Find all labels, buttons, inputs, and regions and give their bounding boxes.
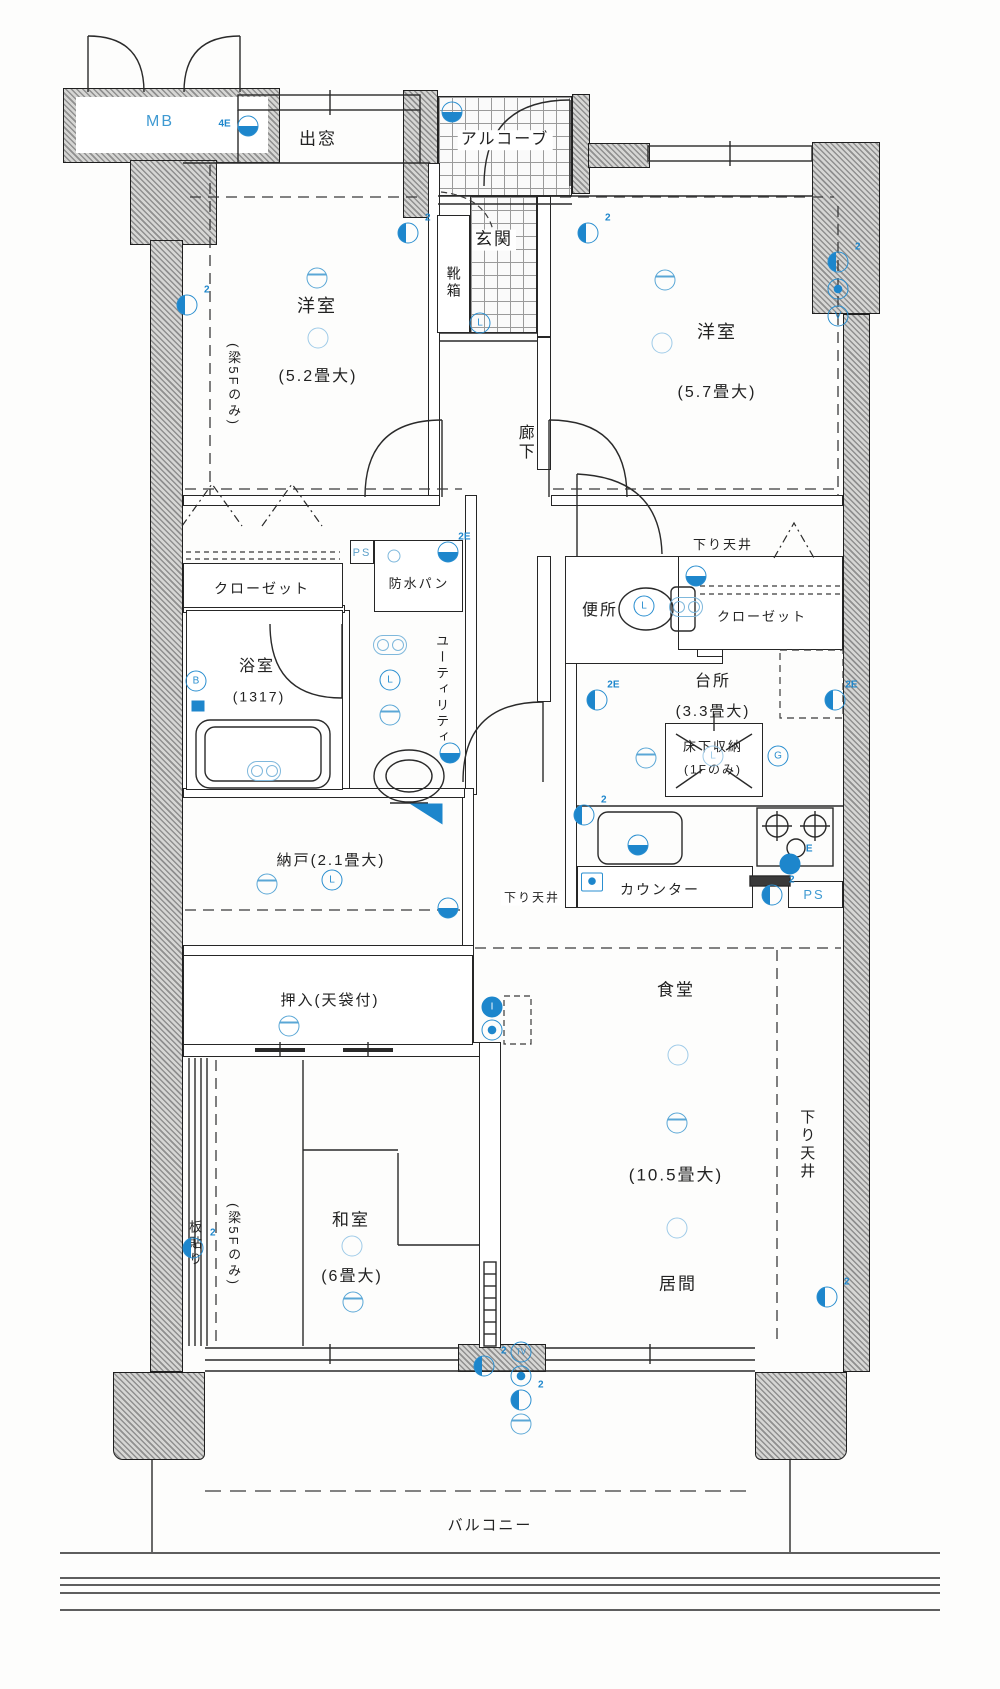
tv-jack-icon: V [828, 306, 849, 327]
light-switch-icon: L [380, 670, 401, 691]
toilet-faucet-icon [669, 597, 703, 617]
label-corridor: 廊下 [515, 424, 533, 462]
outlet-icon [438, 898, 459, 919]
label-closet-right: クローゼット [717, 610, 807, 624]
lamp-icon [342, 1236, 363, 1257]
symbol-tag: 2 [501, 1347, 507, 1357]
washer-faucet-icon: 2E [438, 542, 459, 563]
label-lowered-ceiling-3: 下り天井 [798, 1109, 815, 1181]
symbol-tag: 2E [845, 681, 857, 691]
light-switch-icon: L [703, 746, 724, 767]
gas-outlet-icon: G [768, 746, 789, 767]
label-balcony: バルコニー [448, 1518, 533, 1535]
outlet-icon: 2 [183, 1238, 204, 1259]
label-alcove: アルコーブ [458, 130, 553, 150]
floor-plan: MB出窓アルコーブ玄関靴箱洋室(5.2畳大)(梁5Fのみ)廊下洋室(5.7畳大)… [0, 0, 1000, 1689]
label-western-room-1: 洋室 [297, 297, 337, 317]
outlet-icon: 2E [825, 690, 846, 711]
lamp-icon [668, 1045, 689, 1066]
label-utility: ユーティリティ [434, 634, 448, 746]
ceiling-light-icon [667, 1113, 688, 1134]
label-kitchen: 台所 [695, 673, 731, 691]
symbol-tag: 2 [538, 1381, 544, 1391]
label-mb: MB [146, 113, 174, 131]
ceiling-light-icon [511, 1414, 532, 1435]
symbol-tag: 2 [789, 876, 795, 886]
label-lowered-ceiling-2: 下り天井 [501, 890, 563, 905]
symbol-tag: 2 [855, 243, 861, 253]
fridge-corner-icon [410, 804, 443, 825]
symbol-tag: 2 [844, 1278, 850, 1288]
ceiling-light-icon [257, 874, 278, 895]
outlet-icon: 2 [578, 223, 599, 244]
counter-box-icon [581, 873, 603, 892]
gas-stove-icon: E [780, 854, 801, 875]
lamp-icon [667, 1218, 688, 1239]
bath-unit-icon: B [186, 671, 207, 692]
label-bay-window: 出窓 [299, 131, 337, 150]
label-ld-size: (10.5畳大) [629, 1167, 723, 1186]
label-closet-left: クローゼット [214, 581, 310, 596]
symbol-tag: 2 [210, 1229, 216, 1239]
outlet-icon: 2 [574, 805, 595, 826]
label-waterproof-pan: 防水パン [386, 576, 453, 592]
label-bathroom-size: (1317) [233, 689, 285, 704]
ceiling-light-icon [307, 268, 328, 289]
mb-light-icon: 4E [238, 116, 259, 137]
light-switch-icon: L [634, 596, 655, 617]
alcove-light-icon [442, 102, 463, 123]
symbol-tag: 2 [605, 214, 611, 224]
outlet-icon: 2 [828, 252, 849, 273]
ceiling-light-icon [380, 705, 401, 726]
symbol-tag: 2 [601, 796, 607, 806]
outlet-icon: 2 [511, 1390, 532, 1411]
symbol-tag: 4E [219, 120, 231, 130]
drain-icon [388, 550, 401, 563]
label-toilet: 便所 [582, 602, 618, 620]
label-counter: カウンター [620, 882, 700, 897]
ceiling-light-icon [343, 1292, 364, 1313]
aircon-jack-icon [482, 1020, 503, 1041]
symbol-tag: 2 [425, 214, 431, 224]
light-switch-icon: L [470, 313, 491, 334]
bath-faucet-icon [247, 761, 281, 781]
sink-faucet-icon [628, 835, 649, 856]
phone-jack-icon [828, 279, 849, 300]
ceiling-light-icon [655, 270, 676, 291]
outlet-icon: 2 [762, 885, 783, 906]
label-storeroom: 納戸(2.1畳大) [277, 853, 386, 870]
label-western-room-2-size: (5.7畳大) [678, 384, 757, 402]
symbol-tag: 2E [607, 681, 619, 691]
outlet-icon: 2 [817, 1287, 838, 1308]
aircon-icon: I [482, 997, 503, 1018]
light-switch-icon: L [322, 870, 343, 891]
label-western-room-1-size: (5.2畳大) [279, 368, 358, 386]
phone-jack-icon [511, 1366, 532, 1387]
label-shoebox: 靴箱 [445, 266, 460, 300]
label-japanese-room: 和室 [332, 1212, 370, 1231]
symbol-tag: E [806, 845, 813, 855]
label-genkan: 玄関 [472, 230, 516, 251]
fan-icon [373, 635, 407, 655]
label-beam-5f-1: (梁5Fのみ) [226, 343, 240, 427]
label-ps-2: PS [803, 888, 824, 902]
tv-outlet-icon: TV [511, 1342, 532, 1363]
bath-box-icon [192, 701, 205, 712]
label-lowered-ceiling-1: 下り天井 [693, 538, 753, 552]
symbol-tag: 2E [458, 533, 470, 543]
lamp-icon [308, 328, 329, 349]
label-living: 居間 [659, 1276, 697, 1295]
outlet-icon: 2 [474, 1356, 495, 1377]
outlet-icon: 2E [587, 690, 608, 711]
label-beam-5f-2: (梁5Fのみ) [226, 1203, 240, 1287]
label-japanese-room-size: (6畳大) [321, 1268, 383, 1286]
label-western-room-2: 洋室 [697, 323, 737, 343]
label-oshiire: 押入(天袋付) [281, 993, 380, 1010]
label-bathroom: 浴室 [239, 658, 275, 676]
outlet-icon: 2 [177, 295, 198, 316]
lamp-icon [652, 333, 673, 354]
ceiling-light-icon [279, 1016, 300, 1037]
label-ps-1: PS [353, 547, 372, 559]
symbol-tag: 2 [204, 286, 210, 296]
outlet-icon: 2 [398, 223, 419, 244]
outlet-icon [440, 743, 461, 764]
label-kitchen-size: (3.3畳大) [676, 704, 751, 721]
floorplan-linework [0, 0, 1000, 1689]
ceiling-light-icon [636, 748, 657, 769]
label-dining: 食堂 [657, 982, 695, 1001]
toilet-valve-icon [686, 566, 707, 587]
